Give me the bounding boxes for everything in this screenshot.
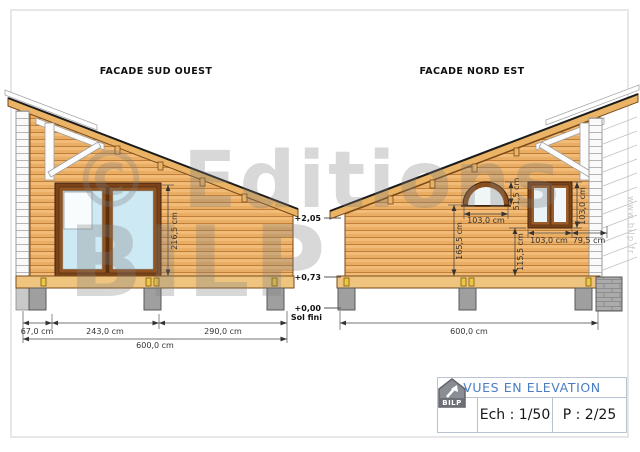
facade-nord-est: 600,0 cm 103,0 cm 51,5 cm 165,5 cm 115,5… bbox=[330, 85, 639, 336]
dim-bay-height: 216,5 cm bbox=[170, 212, 179, 250]
dim-arch-sill-height: 165,5 cm bbox=[455, 222, 464, 260]
level-eaves: +2,05 bbox=[295, 214, 322, 223]
base-beam bbox=[337, 276, 600, 288]
dim-left-offset: 67,0 cm bbox=[21, 327, 54, 336]
level-ground: +0,00 bbox=[295, 304, 322, 313]
dim-arch-height: 51,5 cm bbox=[512, 178, 521, 211]
stone-pillar bbox=[596, 277, 622, 311]
dim-total-width: 600,0 cm bbox=[450, 327, 488, 336]
glass-pane bbox=[534, 188, 547, 222]
scale-label: Ech : 1/50 bbox=[478, 398, 553, 432]
bilp-logo-icon: BILP bbox=[438, 378, 466, 408]
vent-sash bbox=[64, 192, 92, 229]
dim-right-section: 290,0 cm bbox=[204, 327, 242, 336]
facade-right-title: FACADE NORD EST bbox=[419, 66, 524, 77]
dim-window-corner-offset: 79,5 cm bbox=[573, 236, 606, 245]
bilp-logo: BILP bbox=[438, 398, 478, 432]
bilp-logo-text: BILP bbox=[442, 399, 462, 407]
dim-window-width: 103,0 cm bbox=[530, 236, 568, 245]
title-block: VUES EN ELEVATION BILP Ech : 1/50 P : 2/… bbox=[437, 377, 627, 433]
corner-base bbox=[16, 288, 29, 310]
glass-pane bbox=[113, 191, 153, 269]
corner-log-ends bbox=[16, 111, 29, 277]
facade-left-title: FACADE SUD OUEST bbox=[100, 66, 213, 77]
dim-window-sill-height: 115,5 cm bbox=[516, 233, 525, 271]
dim-bay-width: 243,0 cm bbox=[86, 327, 124, 336]
square-window bbox=[528, 182, 572, 228]
dim-window-height: 103,0 cm bbox=[578, 187, 587, 225]
dim-total-width: 600,0 cm bbox=[136, 341, 174, 350]
title-block-title: VUES EN ELEVATION bbox=[438, 378, 626, 398]
page-number-label: P : 2/25 bbox=[553, 398, 626, 432]
facade-sud-ouest: 67,0 cm 243,0 cm 290,0 cm 600,0 cm 216,5… bbox=[5, 90, 298, 350]
sliding-bay-window bbox=[55, 183, 161, 277]
corner-log-ends bbox=[589, 118, 602, 277]
dim-arch-width: 103,0 cm bbox=[467, 216, 505, 225]
level-ground-label: Sol fini bbox=[291, 313, 322, 322]
concrete-piers bbox=[29, 288, 284, 310]
level-floor: +0,73 bbox=[295, 273, 321, 282]
drawing-page: FACADE SUD OUEST FACADE NORD EST bbox=[0, 0, 640, 452]
level-markers: +2,05 +0,73 +0,00 Sol fini bbox=[291, 214, 341, 322]
glass-pane bbox=[554, 188, 566, 222]
overhang-lines bbox=[603, 117, 637, 270]
concrete-piers bbox=[338, 288, 592, 310]
